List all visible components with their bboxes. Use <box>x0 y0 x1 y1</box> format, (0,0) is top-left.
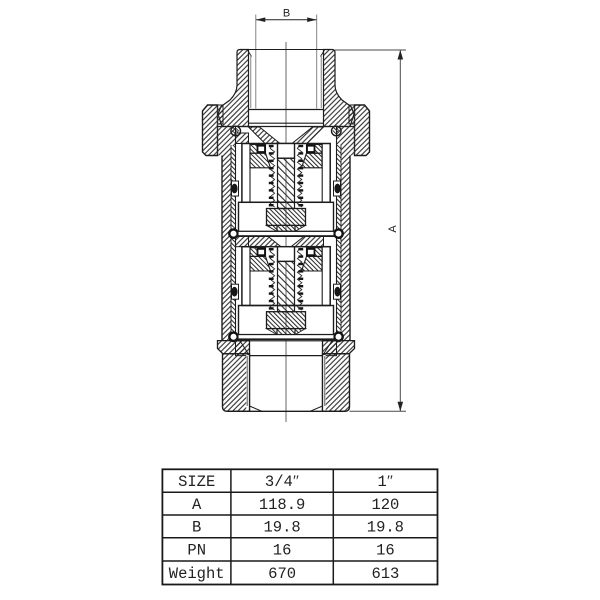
svg-text:A: A <box>387 225 399 233</box>
svg-text:Weight: Weight <box>169 565 225 583</box>
svg-text:B: B <box>283 8 290 20</box>
svg-text:1″: 1″ <box>378 473 394 491</box>
svg-text:A: A <box>192 496 202 514</box>
svg-text:670: 670 <box>268 565 296 583</box>
svg-text:19.8: 19.8 <box>367 519 404 537</box>
svg-text:SIZE: SIZE <box>178 473 215 491</box>
svg-text:19.8: 19.8 <box>263 519 300 537</box>
svg-text:B: B <box>192 519 201 537</box>
svg-text:16: 16 <box>273 542 292 560</box>
svg-text:PN: PN <box>187 542 206 560</box>
svg-text:120: 120 <box>371 496 399 514</box>
svg-text:16: 16 <box>376 542 395 560</box>
svg-text:613: 613 <box>371 565 399 583</box>
svg-text:3/4″: 3/4″ <box>265 473 299 491</box>
svg-text:118.9: 118.9 <box>259 496 306 514</box>
